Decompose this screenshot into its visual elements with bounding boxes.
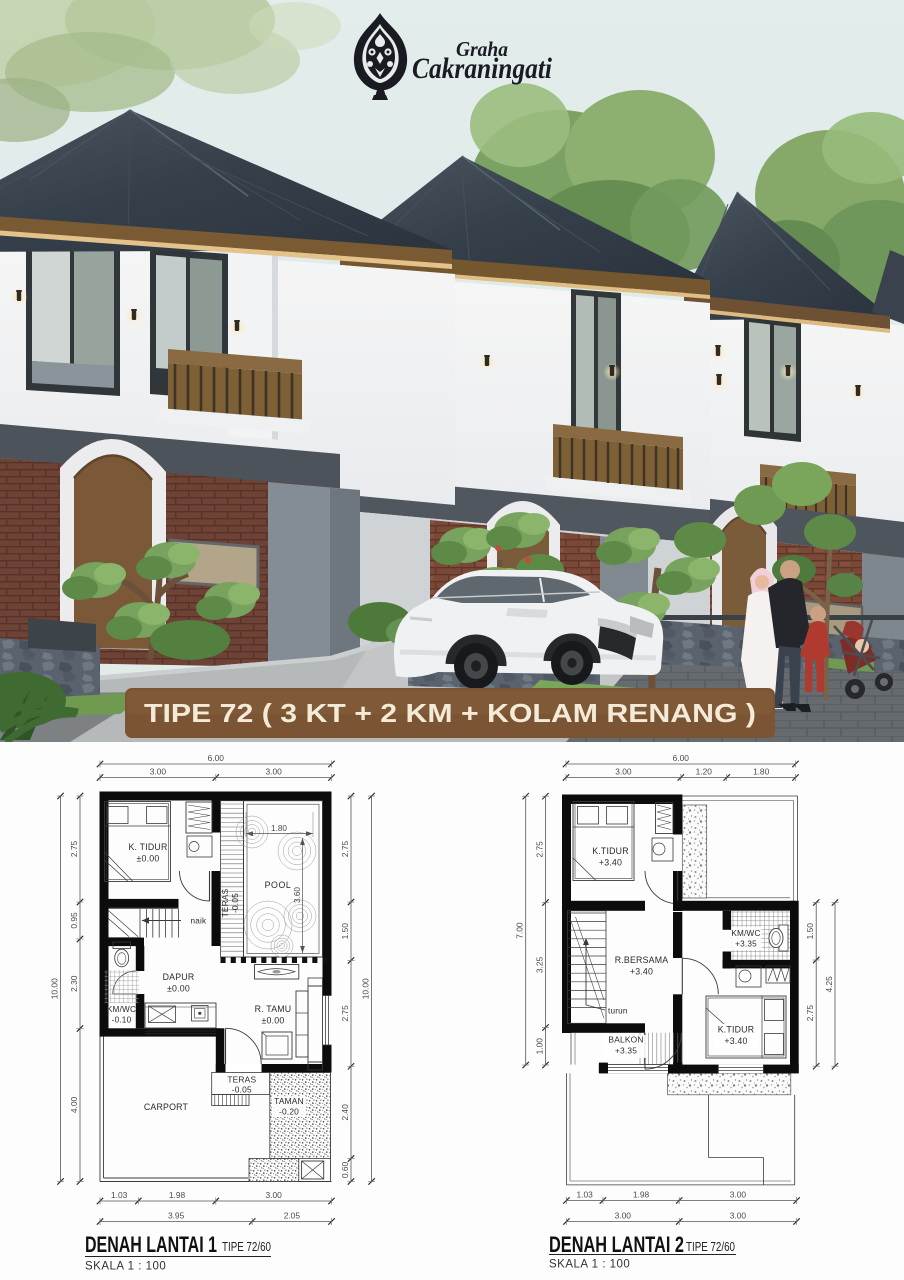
svg-text:1.00: 1.00 — [535, 1038, 545, 1055]
svg-text:2.75: 2.75 — [340, 1005, 350, 1022]
svg-text:3.25: 3.25 — [535, 957, 545, 974]
svg-text:2.30: 2.30 — [69, 975, 79, 992]
svg-text:K.TIDUR: K.TIDUR — [592, 846, 629, 856]
svg-text:KM/WC: KM/WC — [107, 1005, 136, 1014]
svg-text:3.00: 3.00 — [615, 1211, 632, 1221]
svg-text:10.00: 10.00 — [361, 978, 371, 999]
svg-text:6.00: 6.00 — [208, 753, 225, 763]
svg-text:DENAH LANTAI 2: DENAH LANTAI 2 — [549, 1232, 684, 1257]
svg-text:3.00: 3.00 — [265, 1190, 282, 1200]
svg-text:±0.00: ±0.00 — [262, 1016, 285, 1026]
svg-text:1.50: 1.50 — [805, 923, 815, 940]
svg-text:BALKON: BALKON — [608, 1035, 643, 1045]
svg-text:TERAS: TERAS — [220, 888, 230, 917]
svg-text:1.80: 1.80 — [271, 824, 287, 833]
svg-text:0.60: 0.60 — [340, 1162, 350, 1179]
svg-text:TAMAN: TAMAN — [274, 1096, 304, 1106]
svg-text:3.60: 3.60 — [293, 887, 302, 903]
svg-text:1.80: 1.80 — [753, 767, 770, 777]
svg-text:4.25: 4.25 — [824, 976, 834, 993]
svg-text:4.00: 4.00 — [69, 1097, 79, 1114]
svg-text:6.00: 6.00 — [673, 753, 690, 763]
svg-text:2.75: 2.75 — [805, 1005, 815, 1022]
svg-text:CARPORT: CARPORT — [144, 1102, 189, 1112]
svg-text:2.75: 2.75 — [69, 841, 79, 858]
svg-text:3.00: 3.00 — [615, 767, 632, 777]
svg-text:1.03: 1.03 — [576, 1190, 593, 1200]
svg-text:0.95: 0.95 — [69, 912, 79, 929]
svg-text:TERAS: TERAS — [227, 1075, 256, 1085]
svg-text:SKALA 1 : 100: SKALA 1 : 100 — [549, 1259, 630, 1271]
svg-text:2.05: 2.05 — [284, 1211, 301, 1221]
svg-text:2.40: 2.40 — [340, 1104, 350, 1121]
svg-text:3.00: 3.00 — [150, 767, 167, 777]
svg-text:3.00: 3.00 — [730, 1190, 747, 1200]
svg-text:10.00: 10.00 — [50, 978, 60, 999]
svg-text:DENAH LANTAI 1: DENAH LANTAI 1 — [85, 1232, 217, 1257]
svg-text:±0.00: ±0.00 — [167, 984, 190, 994]
svg-text:-0.10: -0.10 — [112, 1016, 132, 1025]
svg-text:KM/WC: KM/WC — [731, 929, 760, 938]
svg-text:+3.35: +3.35 — [735, 940, 757, 949]
svg-text:R.BERSAMA: R.BERSAMA — [615, 955, 669, 965]
svg-text:3.00: 3.00 — [265, 767, 282, 777]
svg-text:R. TAMU: R. TAMU — [255, 1004, 292, 1014]
svg-text:turun: turun — [608, 1007, 628, 1016]
svg-text:TIPE 72 ( 3 KT + 2 KM + KOLAM: TIPE 72 ( 3 KT + 2 KM + KOLAM RENANG ) — [144, 698, 756, 728]
svg-text:+3.40: +3.40 — [724, 1036, 747, 1046]
svg-text:+3.40: +3.40 — [599, 858, 622, 868]
svg-text:2.75: 2.75 — [535, 841, 545, 858]
svg-text:-0.20: -0.20 — [279, 1107, 299, 1117]
svg-text:±0.00: ±0.00 — [137, 854, 160, 864]
svg-text:1.20: 1.20 — [696, 767, 713, 777]
svg-text:1.03: 1.03 — [111, 1190, 128, 1200]
svg-text:DAPUR: DAPUR — [163, 972, 195, 982]
svg-text:1.98: 1.98 — [169, 1190, 186, 1200]
svg-text:1.98: 1.98 — [633, 1190, 650, 1200]
svg-text:SKALA 1 : 100: SKALA 1 : 100 — [85, 1261, 166, 1273]
svg-text:-0.05: -0.05 — [232, 1085, 252, 1095]
svg-text:1.50: 1.50 — [340, 923, 350, 940]
svg-text:3.00: 3.00 — [730, 1211, 747, 1221]
svg-text:TIPE 72/60: TIPE 72/60 — [222, 1239, 271, 1254]
svg-text:POOL: POOL — [265, 880, 292, 890]
svg-text:+3.40: +3.40 — [630, 967, 653, 977]
svg-text:-0.05: -0.05 — [230, 893, 240, 913]
svg-text:naik: naik — [191, 917, 208, 926]
svg-text:K.TIDUR: K.TIDUR — [718, 1025, 755, 1035]
svg-text:2.75: 2.75 — [340, 841, 350, 858]
svg-text:K. TIDUR: K. TIDUR — [128, 842, 167, 852]
svg-text:3.95: 3.95 — [168, 1211, 185, 1221]
svg-text:+3.35: +3.35 — [615, 1046, 637, 1056]
svg-text:Cakraningati: Cakraningati — [412, 52, 553, 85]
svg-text:7.00: 7.00 — [515, 922, 525, 939]
svg-text:TIPE 72/60: TIPE 72/60 — [686, 1239, 735, 1254]
